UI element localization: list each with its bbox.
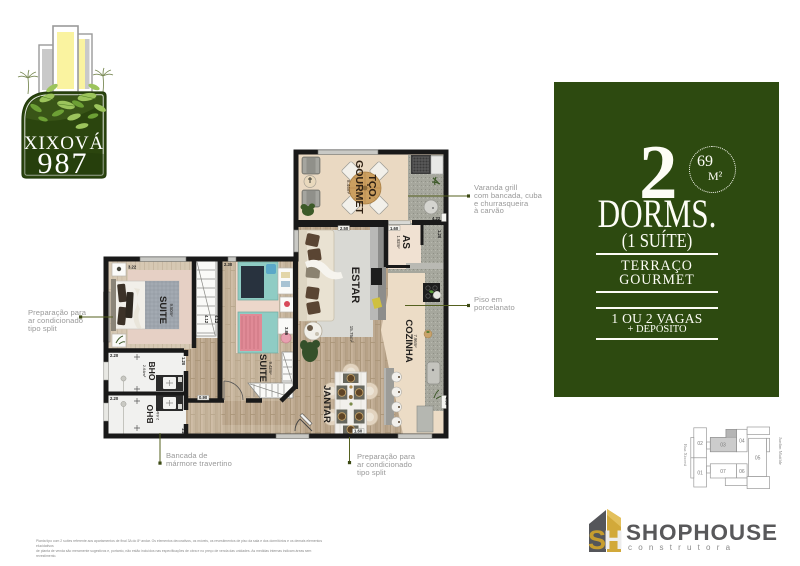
- svg-text:03: 03: [720, 443, 726, 449]
- svg-text:2.64m²: 2.64m²: [142, 365, 147, 378]
- svg-text:TÇO.: TÇO.: [366, 174, 378, 199]
- svg-text:04: 04: [739, 439, 745, 445]
- svg-text:1.20: 1.20: [181, 357, 186, 366]
- svg-text:9.42m²: 9.42m²: [268, 361, 273, 375]
- svg-text:07: 07: [720, 469, 726, 475]
- svg-text:BHO: BHO: [147, 362, 157, 381]
- svg-text:1.20: 1.20: [181, 428, 186, 437]
- svg-text:15.75m²: 15.75m²: [349, 326, 354, 343]
- svg-text:COZINHA: COZINHA: [403, 319, 414, 362]
- svg-text:4.12: 4.12: [204, 315, 209, 324]
- svg-text:BHO: BHO: [145, 404, 155, 423]
- svg-text:2.30: 2.30: [224, 262, 233, 267]
- svg-text:02: 02: [697, 441, 703, 447]
- svg-text:01: 01: [697, 471, 703, 477]
- svg-text:1.60: 1.60: [354, 429, 363, 434]
- svg-text:construtora: construtora: [628, 543, 736, 552]
- svg-text:1.92m²: 1.92m²: [396, 235, 401, 249]
- svg-text:1.20: 1.20: [437, 230, 442, 239]
- svg-text:4.12: 4.12: [214, 315, 219, 324]
- svg-text:Rua Xixová: Rua Xixová: [683, 444, 688, 466]
- svg-text:2.64m²: 2.64m²: [155, 407, 160, 420]
- svg-text:3.86: 3.86: [284, 327, 289, 336]
- svg-text:7.96m²: 7.96m²: [413, 334, 418, 348]
- svg-text:1.60: 1.60: [390, 226, 399, 231]
- svg-text:ESTAR: ESTAR: [349, 267, 361, 304]
- svg-text:05: 05: [755, 456, 761, 462]
- svg-text:Jardim Matilde: Jardim Matilde: [778, 437, 783, 465]
- svg-text:SUITE: SUITE: [157, 296, 168, 324]
- svg-text:2.50: 2.50: [340, 226, 349, 231]
- svg-text:2.20: 2.20: [110, 353, 119, 358]
- svg-text:0.90: 0.90: [199, 395, 208, 400]
- svg-text:SHOPHOUSE: SHOPHOUSE: [626, 520, 778, 545]
- svg-text:8.44m²: 8.44m²: [346, 180, 351, 195]
- svg-text:2.20: 2.20: [110, 396, 119, 401]
- svg-text:H: H: [604, 525, 624, 555]
- svg-text:06: 06: [739, 469, 745, 475]
- svg-text:SUITE: SUITE: [257, 354, 268, 382]
- svg-text:GOURMET: GOURMET: [353, 160, 365, 214]
- svg-text:9.50m²: 9.50m²: [169, 303, 174, 317]
- svg-text:4.22: 4.22: [432, 216, 441, 221]
- svg-text:4.50: 4.50: [445, 397, 450, 406]
- svg-text:JANTAR: JANTAR: [321, 385, 332, 423]
- svg-text:3.22: 3.22: [128, 265, 137, 270]
